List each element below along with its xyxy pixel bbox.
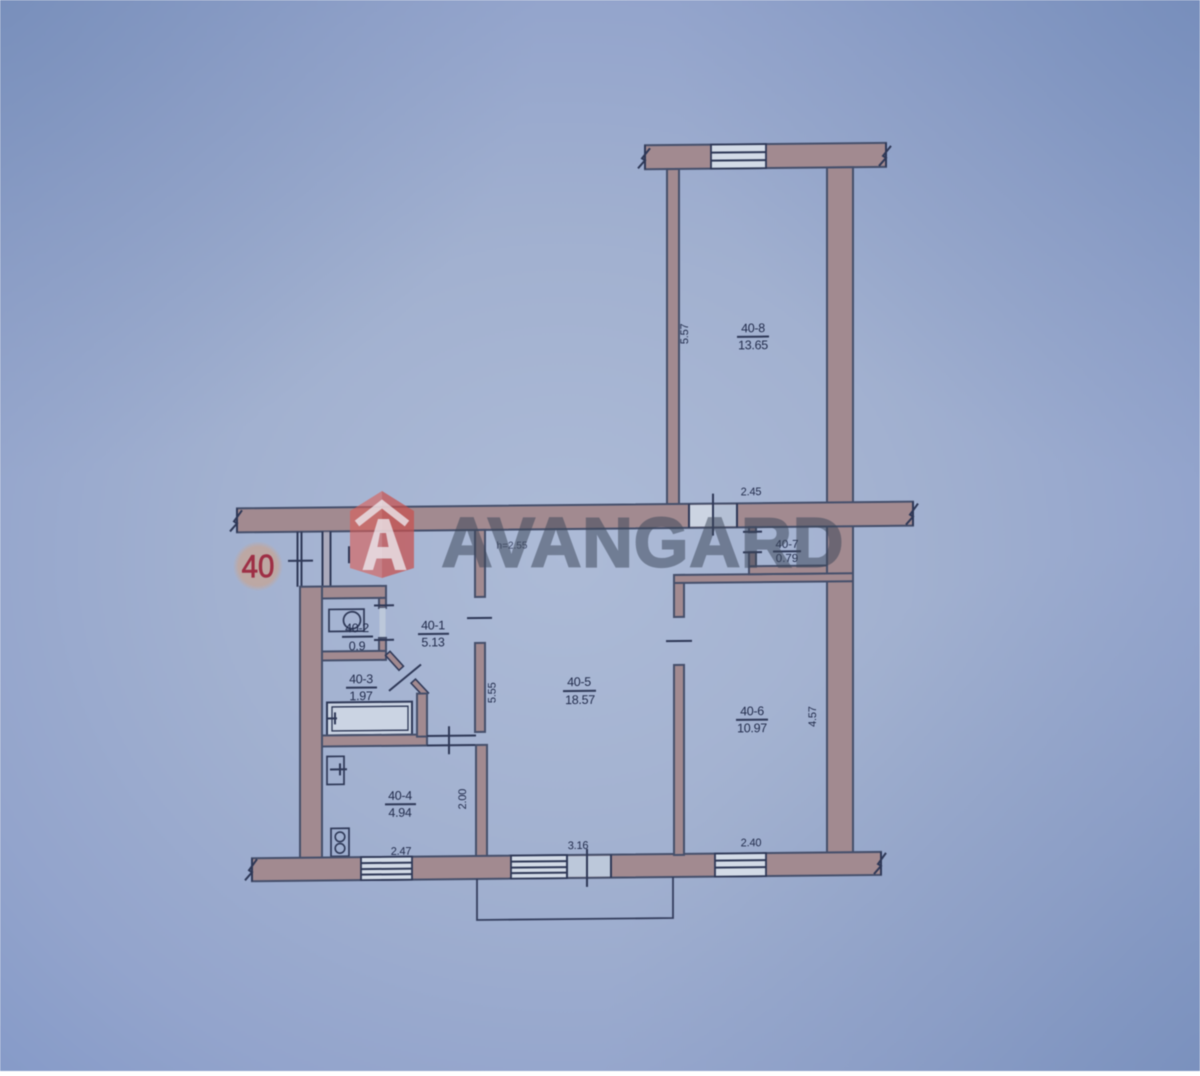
- svg-text:5.55: 5.55: [487, 682, 499, 703]
- svg-text:40-8: 40-8: [741, 321, 765, 335]
- svg-text:13.65: 13.65: [738, 338, 768, 352]
- svg-text:40-6: 40-6: [740, 704, 764, 718]
- svg-text:3.16: 3.16: [568, 840, 589, 852]
- svg-text:4.57: 4.57: [807, 706, 819, 727]
- svg-text:18.57: 18.57: [565, 693, 595, 707]
- svg-text:4.94: 4.94: [388, 806, 411, 820]
- svg-text:10.97: 10.97: [737, 721, 767, 735]
- svg-text:2.45: 2.45: [741, 486, 762, 498]
- svg-text:40-2: 40-2: [345, 621, 369, 635]
- svg-text:40-5: 40-5: [567, 675, 591, 689]
- svg-text:2.00: 2.00: [457, 789, 469, 810]
- svg-text:5.13: 5.13: [421, 635, 444, 649]
- svg-text:5.57: 5.57: [679, 323, 691, 344]
- svg-text:2.40: 2.40: [741, 837, 762, 849]
- svg-text:40-1: 40-1: [421, 618, 445, 632]
- svg-text:40: 40: [242, 548, 275, 585]
- svg-text:AVANGARD: AVANGARD: [442, 504, 845, 582]
- svg-text:40-4: 40-4: [388, 789, 412, 803]
- svg-text:40-3: 40-3: [349, 672, 373, 686]
